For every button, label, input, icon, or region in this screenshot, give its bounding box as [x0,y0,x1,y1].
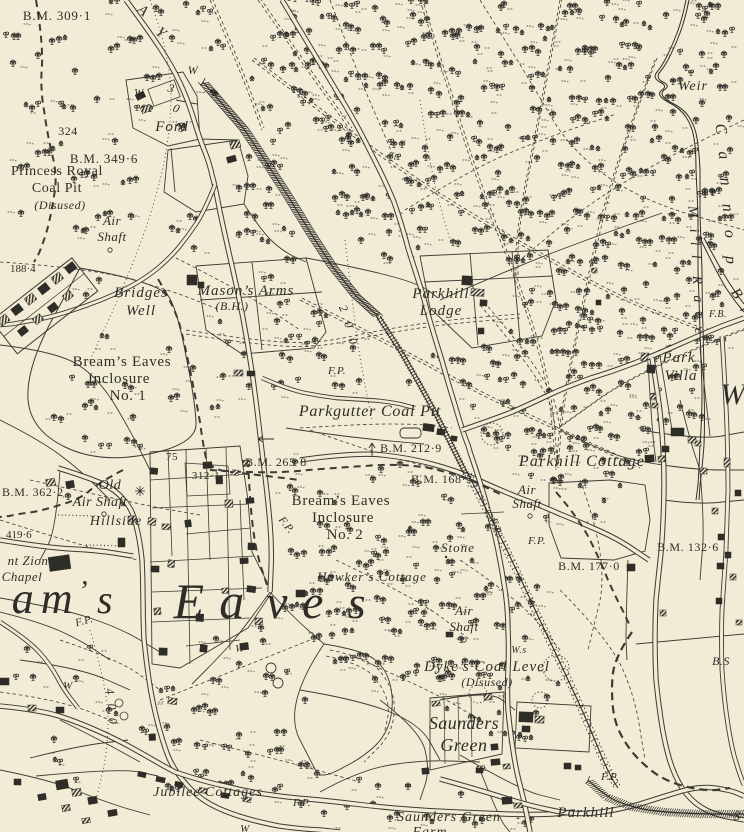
svg-text:Coal Pit: Coal Pit [32,181,82,196]
svg-text:n: n [719,203,737,212]
svg-text:419·6: 419·6 [6,529,32,541]
svg-text:Saunders Green: Saunders Green [397,810,501,825]
svg-text:F.P.: F.P. [600,771,619,783]
svg-text:c: c [691,312,706,319]
svg-text:Park: Park [661,350,695,366]
svg-text:B.M. 168·3: B.M. 168·3 [411,472,473,486]
svg-text:Old: Old [99,478,122,493]
svg-text:Parkhill: Parkhill [556,805,614,821]
svg-text:Shaft: Shaft [97,229,126,244]
svg-text:v: v [266,576,288,629]
svg-text:324: 324 [58,124,78,138]
svg-text:Air Shaft: Air Shaft [72,495,128,510]
svg-text:B.M. 177·0: B.M. 177·0 [558,559,620,573]
svg-text:Shaft: Shaft [512,496,541,511]
svg-text:Inclosure: Inclosure [88,371,150,387]
svg-text:Air: Air [454,603,474,618]
svg-text:B.S: B.S [712,654,730,668]
svg-text:m: m [41,574,73,623]
svg-text:Bridges: Bridges [114,285,168,301]
svg-text:Well: Well [126,303,156,319]
svg-text:W: W [134,87,144,99]
svg-text:Farm: Farm [411,825,447,832]
svg-text:E: E [172,573,204,629]
svg-text:e: e [302,576,324,629]
svg-text:(B.H.): (B.H.) [216,299,249,313]
svg-text:B.M. 132·6: B.M. 132·6 [657,540,719,554]
svg-text:Parkgutter Coal Pit: Parkgutter Coal Pit [298,403,441,420]
svg-text:a: a [12,574,35,623]
svg-text:Bream’s Eaves: Bream’s Eaves [73,354,172,370]
svg-text:Weir: Weir [678,79,708,94]
svg-text:No. 1: No. 1 [110,388,147,404]
svg-text:0: 0 [105,703,119,710]
svg-text:Saunders: Saunders [429,713,499,733]
svg-text:Green: Green [440,735,487,755]
svg-text:(Disused): (Disused) [461,675,512,689]
svg-text:(Disused): (Disused) [34,198,85,212]
svg-text:188·4: 188·4 [10,263,36,275]
svg-text:F.P.: F.P. [327,365,346,377]
svg-text:Stone: Stone [441,540,475,555]
svg-text:No. 2: No. 2 [327,527,364,543]
svg-text:W: W [63,680,73,692]
svg-text:F.P.: F.P. [292,797,311,809]
svg-text:Dyke’s Coal Level: Dyke’s Coal Level [423,659,550,675]
svg-text:a: a [690,295,705,303]
svg-text:75: 75 [166,451,178,463]
svg-text:F.P.: F.P. [527,535,546,547]
svg-text:a: a [219,573,245,629]
svg-text:Mason’s Arms: Mason’s Arms [197,283,295,299]
svg-text:B.M. 309·1: B.M. 309·1 [23,8,91,23]
svg-text:R: R [689,274,704,285]
svg-text:Ford: Ford [154,119,188,135]
svg-text:Air: Air [102,213,122,228]
svg-text:Princess Royal: Princess Royal [11,164,103,179]
svg-text:F.B.: F.B. [708,309,727,320]
svg-text:W.s: W.s [511,645,526,656]
svg-text:312·1: 312·1 [192,470,220,482]
svg-text:Lodge: Lodge [419,303,463,319]
svg-text:W: W [720,378,744,411]
svg-text:s: s [348,577,366,628]
svg-text:S: S [734,808,741,823]
svg-text:Parkhill Cottage: Parkhill Cottage [518,453,645,470]
svg-text:nt Zion: nt Zion [8,553,49,568]
svg-text:W: W [240,823,250,832]
svg-text:o: o [721,230,738,239]
svg-text:Air: Air [517,482,537,497]
svg-text:e: e [691,328,706,334]
svg-text:B.M. 362·2: B.M. 362·2 [2,485,64,499]
svg-text:Villa: Villa [664,368,697,384]
svg-text:Hawker’s Cottage: Hawker’s Cottage [316,569,427,584]
svg-text:p: p [722,255,739,264]
svg-text:s: s [97,577,113,622]
svg-text:0: 0 [106,718,120,724]
svg-text:’: ’ [78,576,88,607]
svg-text:B.M. 265·8: B.M. 265·8 [245,455,307,469]
svg-text:Bream’s Eaves: Bream’s Eaves [292,493,391,509]
svg-text:Parkhill: Parkhill [411,286,469,302]
svg-text:Shaft: Shaft [449,619,478,634]
svg-text:W: W [188,63,199,77]
svg-text:Hillside: Hillside [89,514,142,529]
svg-text:Inclosure: Inclosure [312,510,374,526]
svg-text:W: W [235,643,245,655]
svg-text:Jubilee Cottages: Jubilee Cottages [153,785,263,800]
